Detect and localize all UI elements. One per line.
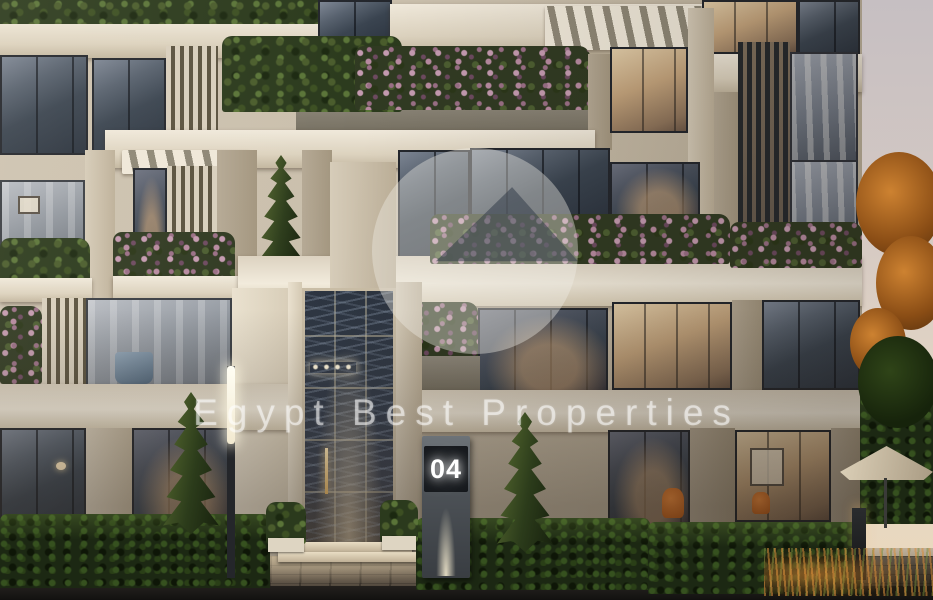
- window-dark: [798, 0, 860, 54]
- wall-art: [750, 448, 784, 486]
- ceramic-pot: [115, 352, 153, 384]
- planter-pot: [382, 536, 416, 550]
- pylon-uplight: [430, 476, 462, 576]
- umbrella-pole: [884, 478, 887, 528]
- wall-pier: [690, 428, 735, 526]
- entrance-light-strip: [325, 448, 328, 494]
- wall-art: [18, 196, 40, 214]
- balcony-planter-flowers: [113, 232, 235, 282]
- orange-chair: [662, 488, 684, 518]
- watermark-logo-circle: [372, 148, 578, 354]
- slat-screen: [42, 298, 86, 384]
- entrance-steps: [278, 552, 418, 562]
- unit-number-pylon: 04: [422, 436, 470, 578]
- window-curtains: [86, 298, 232, 386]
- watermark-logo-pyramid: [372, 148, 578, 354]
- architectural-render-image: 04 Egypt Best Properties: [0, 0, 933, 600]
- ornamental-grasses: [764, 548, 933, 596]
- orange-chair: [752, 492, 770, 514]
- wall-pier: [732, 300, 762, 392]
- entrance-chandelier: [310, 362, 356, 373]
- pendant-lamp: [56, 462, 66, 470]
- window-curtains: [790, 52, 858, 162]
- window-dark: [762, 300, 860, 390]
- balcony-planter-flowers: [0, 306, 42, 384]
- watermark-text: Egypt Best Properties: [0, 392, 933, 434]
- balcony-planter-flowers: [730, 222, 862, 268]
- balcony-planter-flowers: [355, 46, 590, 110]
- window-warm: [610, 47, 688, 133]
- planter-pot: [268, 538, 304, 552]
- window-dark: [0, 55, 88, 155]
- window-warm: [612, 302, 732, 390]
- roof-planter-greens: [0, 0, 318, 24]
